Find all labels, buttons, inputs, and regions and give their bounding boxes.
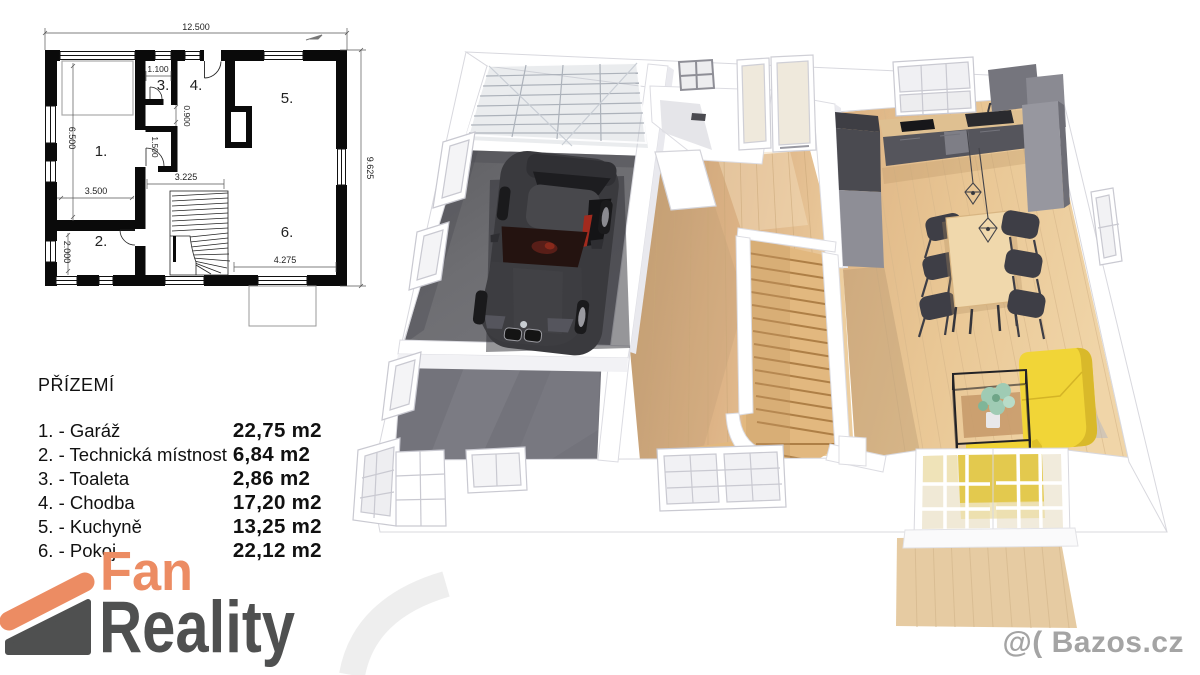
svg-text:Reality: Reality bbox=[99, 587, 295, 668]
svg-text:0.900: 0.900 bbox=[182, 105, 192, 127]
svg-text:4.: 4. bbox=[190, 77, 203, 94]
svg-text:5.: 5. bbox=[281, 90, 294, 107]
svg-text:2.000: 2.000 bbox=[62, 241, 72, 264]
svg-text:3.225: 3.225 bbox=[175, 172, 198, 182]
svg-text:6.: 6. bbox=[281, 224, 294, 241]
svg-text:1.: 1. bbox=[95, 143, 108, 160]
svg-text:3.: 3. bbox=[157, 77, 170, 94]
svg-text:12.500: 12.500 bbox=[182, 22, 210, 32]
svg-text:4.275: 4.275 bbox=[274, 255, 297, 265]
svg-text:6.500: 6.500 bbox=[67, 127, 77, 150]
svg-text:2.: 2. bbox=[95, 233, 108, 250]
svg-text:1.500: 1.500 bbox=[150, 136, 160, 158]
svg-text:3.500: 3.500 bbox=[85, 186, 108, 196]
svg-text:1.100: 1.100 bbox=[147, 64, 169, 74]
